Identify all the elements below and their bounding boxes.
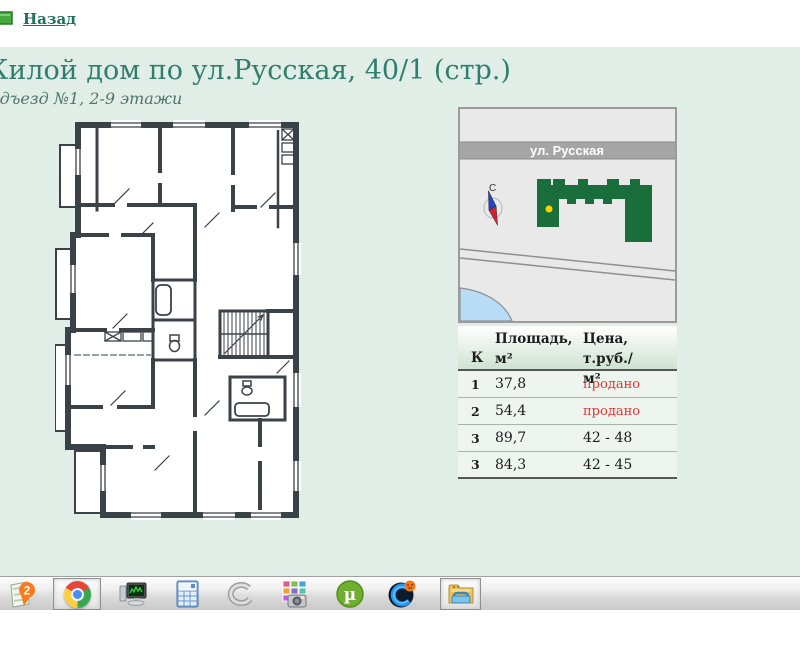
2gis-icon: 2 [7,579,37,609]
entrance-marker [546,206,553,213]
table-row: 3 89,7 42 - 48 [458,425,677,452]
taskbar-item-system-monitor[interactable] [117,578,149,610]
taskbar: 2 [0,576,800,610]
col-header-k: К [458,348,495,368]
screenshot-tool-icon [279,579,309,609]
street-label: ул. Русская [530,143,604,158]
taskbar-item-2gis[interactable]: 2 [6,578,38,610]
price-table: К Площадь,м² Цена, т.руб./м² 1 37,8 прод… [458,326,677,479]
page-subtitle: Подъезд №1, 2-9 этажи [0,89,182,108]
svg-text:µ: µ [344,585,356,605]
table-row: 3 84,3 42 - 45 [458,452,677,479]
back-arrow-icon[interactable] [0,3,14,33]
svg-text:2: 2 [24,584,31,598]
svg-text:С: С [489,183,496,194]
calculator-icon [172,579,202,609]
table-row: 2 54,4 продано [458,398,677,425]
chrome-icon [64,581,91,608]
system-monitor-icon [118,579,148,609]
content-area: Жилой дом по ул.Русская, 40/1 (стр.) Под… [0,47,800,576]
advanced-systemcare-icon [387,579,417,609]
bottom-whitespace [0,610,800,661]
location-map: ул. Русская [458,107,677,323]
page-title: Жилой дом по ул.Русская, 40/1 (стр.) [0,55,511,86]
back-link[interactable]: Назад [23,10,76,28]
metal-ring-icon [225,579,255,609]
taskbar-item-explorer[interactable] [440,578,481,610]
explorer-icon [446,579,476,609]
floor-plan[interactable] [55,115,305,520]
taskbar-item-advanced-systemcare[interactable] [386,578,418,610]
taskbar-item-utorrent[interactable]: µ [334,578,366,610]
utorrent-icon: µ [335,579,365,609]
taskbar-item-metal-ring[interactable] [224,578,256,610]
taskbar-item-screenshot-tool[interactable] [278,578,310,610]
desktop: Назад Жилой дом по ул.Русская, 40/1 (стр… [0,0,800,661]
taskbar-item-chrome[interactable] [53,578,101,610]
table-header: К Площадь,м² Цена, т.руб./м² [458,326,677,371]
taskbar-item-calculator[interactable] [171,578,203,610]
